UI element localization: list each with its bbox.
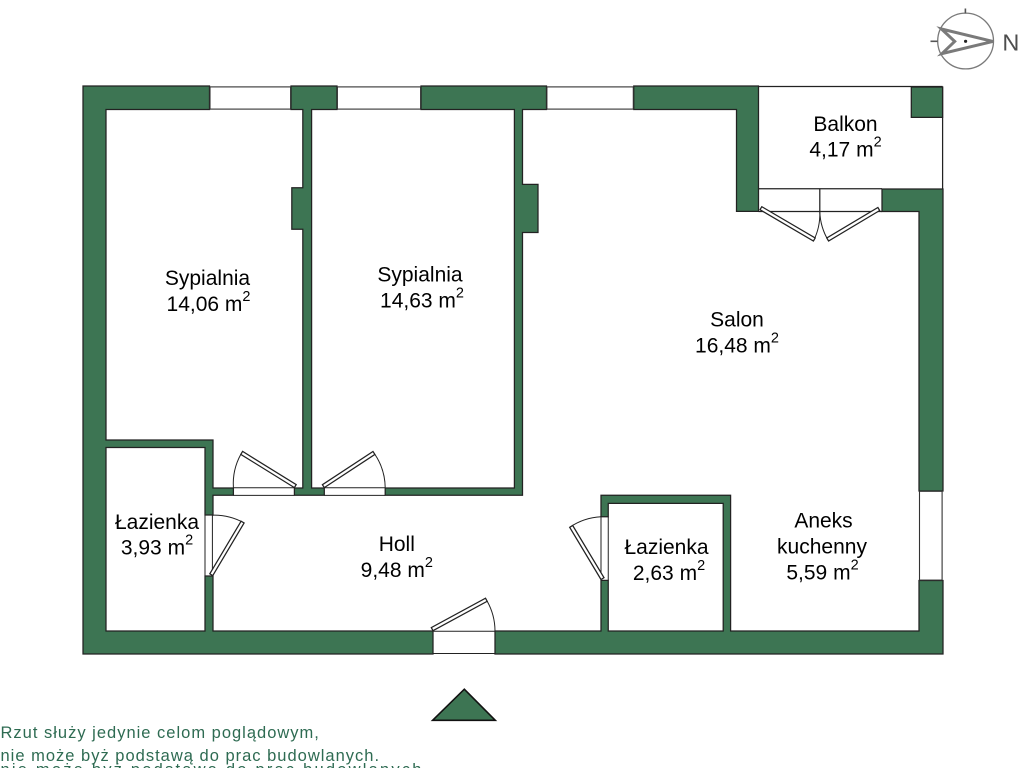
svg-text:N: N [1002,29,1019,55]
svg-text:2,63 m2: 2,63 m2 [633,558,705,585]
svg-text:Sypialnia: Sypialnia [165,267,251,290]
svg-text:Aneks: Aneks [794,510,852,533]
svg-text:kuchenny: kuchenny [777,536,867,559]
svg-text:Rzut służy jedynie celom poglą: Rzut służy jedynie celom poglądowym, [1,724,320,742]
svg-text:14,63 m2: 14,63 m2 [380,286,464,313]
svg-text:Sypialnia: Sypialnia [377,264,463,287]
svg-text:Balkon: Balkon [813,113,877,136]
svg-text:14,06 m2: 14,06 m2 [167,289,251,316]
svg-text:nie może byż podstawą do prac: nie może byż podstawą do prac budowlanyc… [1,761,431,768]
svg-text:Salon: Salon [710,309,764,332]
svg-text:9,48 m2: 9,48 m2 [361,555,433,582]
svg-text:5,59 m2: 5,59 m2 [786,558,858,585]
svg-text:3,93 m2: 3,93 m2 [121,533,193,560]
svg-text:Holl: Holl [379,533,415,556]
svg-text:16,48 m2: 16,48 m2 [695,331,779,358]
svg-text:Łazienka: Łazienka [624,536,708,559]
svg-text:Łazienka: Łazienka [115,511,199,534]
svg-text:4,17 m2: 4,17 m2 [809,135,881,162]
